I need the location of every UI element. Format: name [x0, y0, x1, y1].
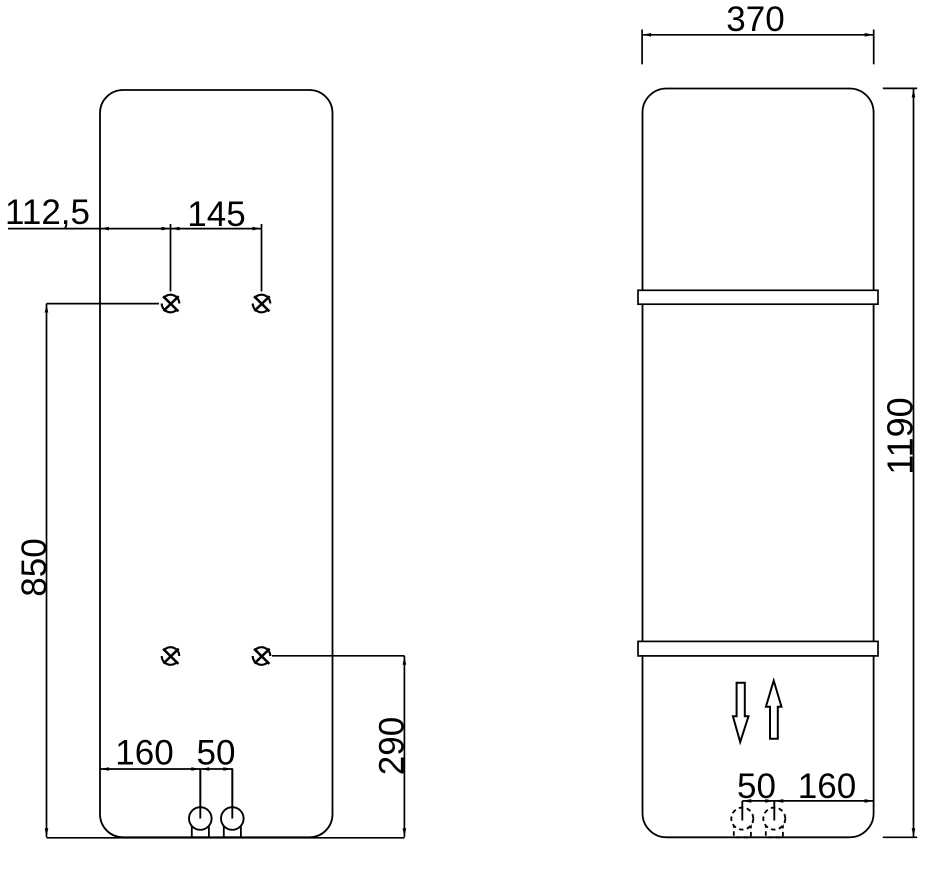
svg-text:160: 160	[115, 734, 173, 773]
svg-text:145: 145	[187, 195, 245, 234]
svg-text:160: 160	[798, 767, 856, 806]
svg-text:850: 850	[15, 538, 54, 596]
svg-text:370: 370	[726, 0, 784, 39]
svg-text:112,5: 112,5	[5, 193, 90, 232]
svg-text:1190: 1190	[880, 397, 921, 474]
svg-text:50: 50	[197, 734, 236, 773]
svg-text:290: 290	[373, 717, 412, 775]
svg-text:50: 50	[737, 767, 776, 806]
